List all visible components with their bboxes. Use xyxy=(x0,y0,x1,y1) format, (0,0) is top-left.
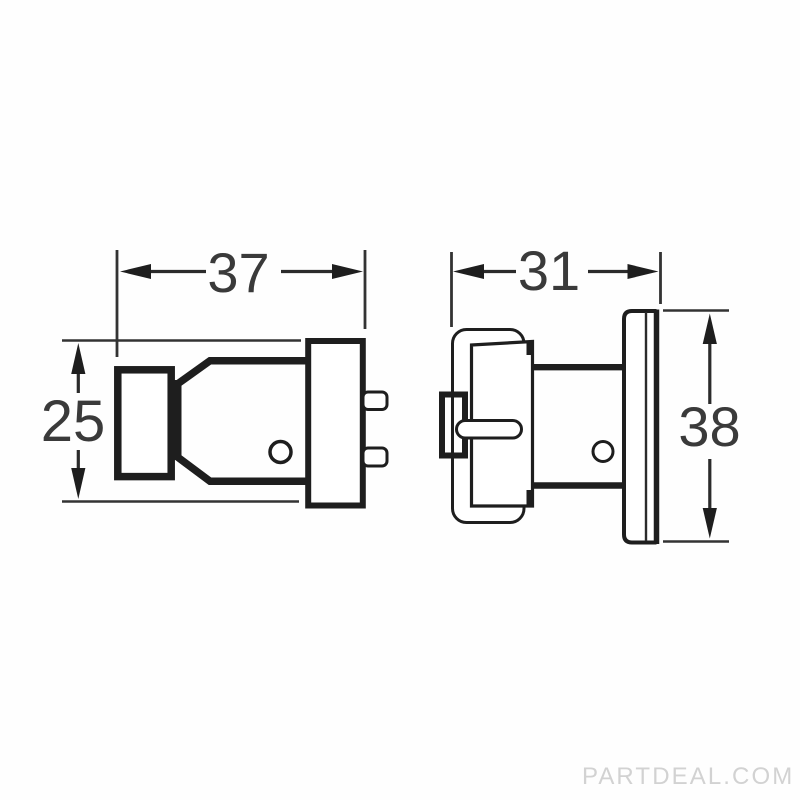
svg-text:38: 38 xyxy=(678,395,740,458)
svg-text:25: 25 xyxy=(41,389,106,454)
svg-text:31: 31 xyxy=(518,239,580,302)
svg-text:37: 37 xyxy=(207,241,269,304)
